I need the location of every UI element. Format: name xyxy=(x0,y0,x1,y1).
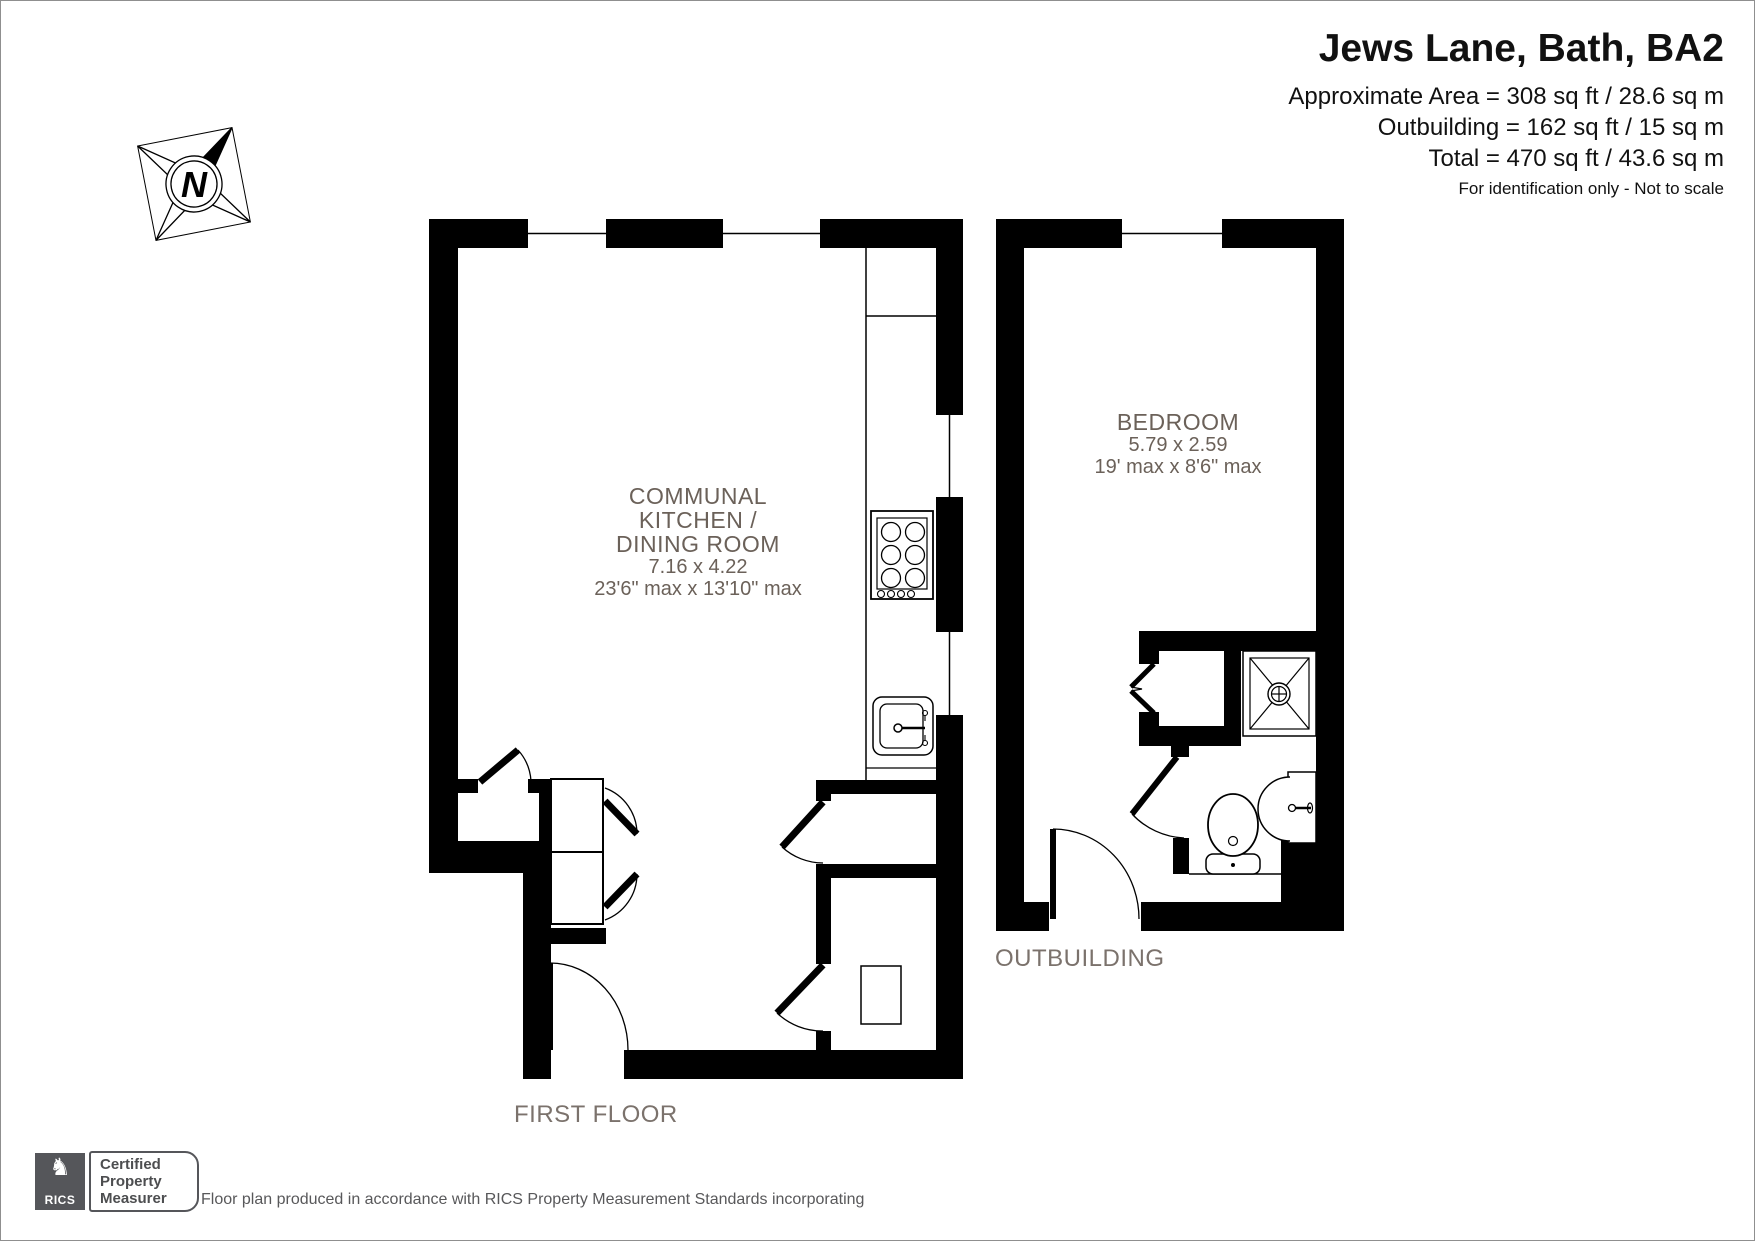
room-name-line: BEDROOM xyxy=(1094,410,1261,434)
outbuilding-entrance-door xyxy=(1053,829,1139,919)
rics-lion-crest-icon: ♞ xyxy=(49,1156,71,1180)
first-floor-walls xyxy=(429,219,963,1079)
hob-icon xyxy=(871,511,933,599)
shower-icon xyxy=(1243,651,1316,736)
outbuilding-window xyxy=(1121,219,1223,248)
kitchen-sink-icon xyxy=(873,697,933,755)
badge-line: Measurer xyxy=(100,1190,197,1207)
disclaimer-text: For identification only - Not to scale xyxy=(1288,179,1724,199)
kitchen-room-label: COMMUNAL KITCHEN / DINING ROOM 7.16 x 4.… xyxy=(594,484,802,600)
cupboard-door-swings xyxy=(605,788,637,920)
footer-disclaimer: Floor plan produced in accordance with R… xyxy=(201,1152,864,1241)
certified-property-measurer-badge: Certified Property Measurer xyxy=(89,1151,199,1212)
approximate-area-text: Approximate Area = 308 sq ft / 28.6 sq m xyxy=(1288,81,1724,112)
floorplan-page: N xyxy=(0,0,1755,1241)
header: Jews Lane, Bath, BA2 Approximate Area = … xyxy=(1288,27,1724,199)
cupboard-units xyxy=(551,779,603,924)
rics-abbreviation: RICS xyxy=(45,1193,76,1207)
rics-logo: ♞ RICS xyxy=(35,1153,85,1210)
basin-icon xyxy=(1258,772,1316,843)
room-dims-imperial: 19' max x 8'6" max xyxy=(1094,456,1261,478)
room-dims-metric: 7.16 x 4.22 xyxy=(594,556,802,578)
outbuilding-area-text: Outbuilding = 162 sq ft / 15 sq m xyxy=(1288,112,1724,143)
toilet-icon xyxy=(1206,794,1260,874)
badge-line: Property xyxy=(100,1173,197,1190)
room-dims-imperial: 23'6" max x 13'10" max xyxy=(594,578,802,600)
bifold-door-icon xyxy=(1131,664,1154,713)
first-floor-label: FIRST FLOOR xyxy=(514,1101,678,1129)
first-floor-windows xyxy=(527,219,963,716)
badge-line: Certified xyxy=(100,1156,197,1173)
compass-rose-icon: N xyxy=(100,90,289,279)
footer-line: Floor plan produced in accordance with R… xyxy=(201,1190,864,1209)
room-dims-metric: 5.79 x 2.59 xyxy=(1094,434,1261,456)
total-area-text: Total = 470 sq ft / 43.6 sq m xyxy=(1288,143,1724,174)
room-name-line: DINING ROOM xyxy=(594,532,802,556)
page-title: Jews Lane, Bath, BA2 xyxy=(1288,27,1724,71)
room-name-line: COMMUNAL xyxy=(594,484,802,508)
bedroom-room-label: BEDROOM 5.79 x 2.59 19' max x 8'6" max xyxy=(1094,410,1261,478)
compass-north-letter: N xyxy=(181,164,208,205)
room-name-line: KITCHEN / xyxy=(594,508,802,532)
outbuilding-label: OUTBUILDING xyxy=(995,945,1165,973)
storage-unit xyxy=(861,966,901,1024)
